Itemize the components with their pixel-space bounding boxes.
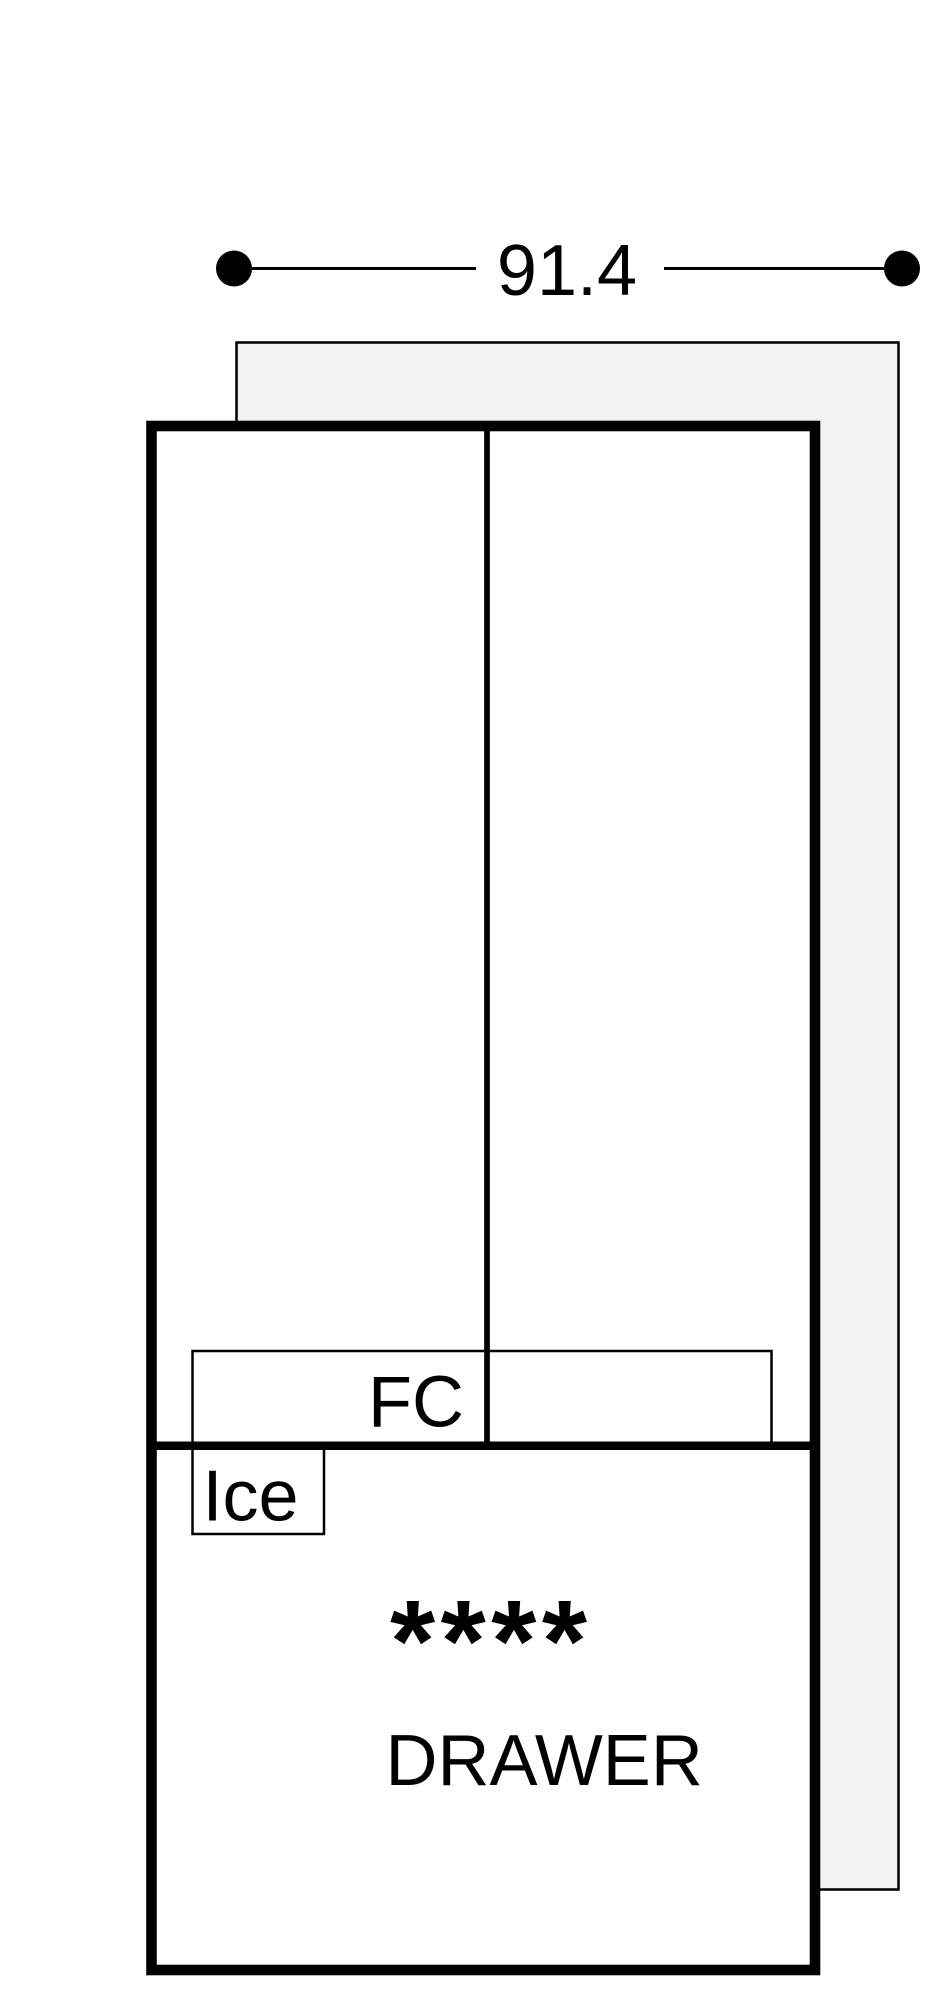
svg-text:Ice: Ice [203,1457,299,1537]
svg-text:****: **** [390,1576,593,1706]
svg-text:DRAWER: DRAWER [386,1721,703,1801]
svg-text:FC: FC [368,1363,464,1443]
svg-text:91.4: 91.4 [497,231,637,311]
